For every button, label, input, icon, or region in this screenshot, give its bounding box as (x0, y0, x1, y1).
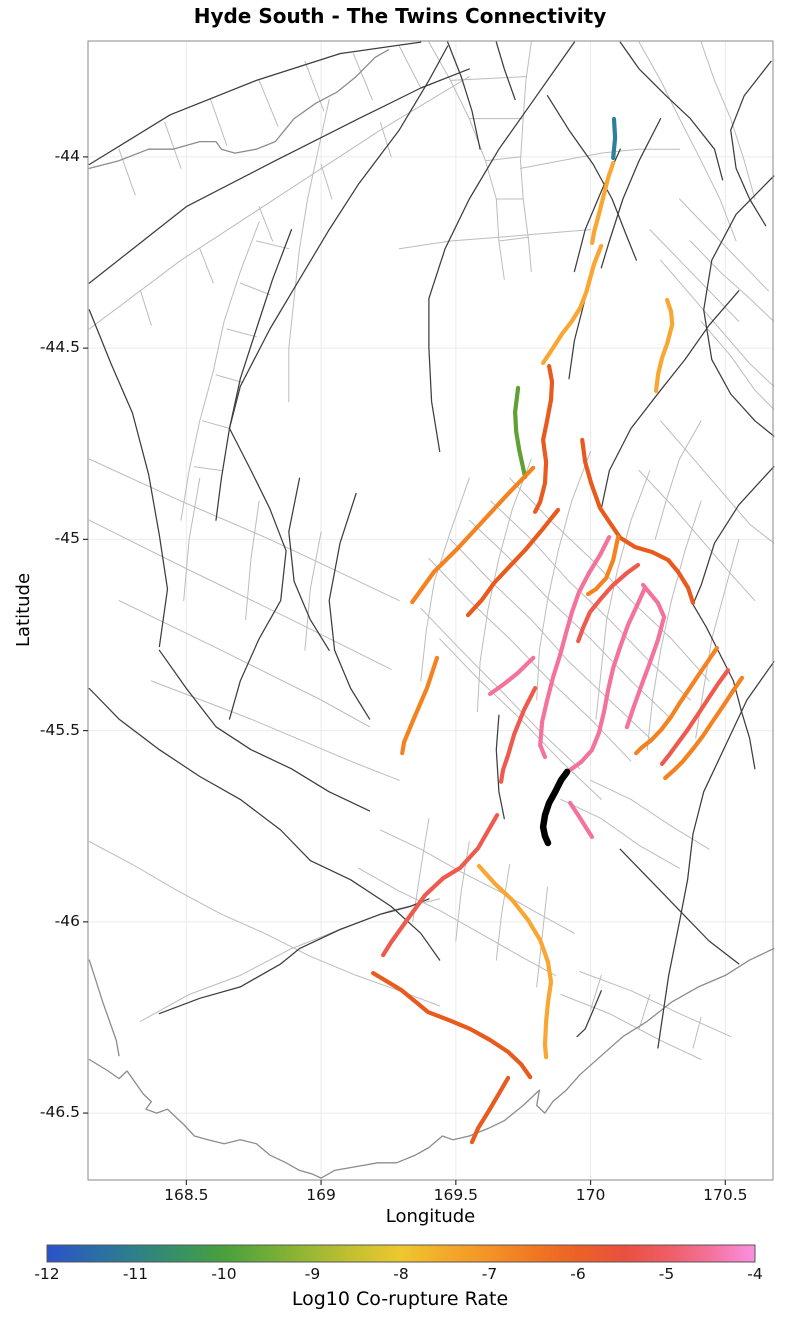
fault-line (89, 459, 399, 601)
colorbar (47, 1245, 755, 1262)
target-fault (543, 772, 567, 843)
fault-line (165, 123, 181, 169)
fault-line (203, 421, 230, 429)
fault-line (561, 995, 701, 1060)
fault-line (701, 321, 774, 409)
x-tick-label: 169.5 (421, 1186, 491, 1204)
fault-line (580, 972, 731, 1037)
colorbar-tick-label: -6 (553, 1265, 603, 1283)
fault-line (704, 176, 774, 436)
target-fault-trace (543, 772, 567, 843)
rupture-trace (383, 815, 497, 955)
fault-line (216, 375, 243, 383)
fault-line (496, 865, 509, 961)
coastline-path (89, 960, 119, 1056)
colorbar-label: Log10 Co-rupture Rate (0, 1288, 800, 1310)
fault-line (620, 42, 722, 180)
fault-line (159, 899, 429, 1014)
plot-title: Hyde South - The Twins Connectivity (0, 4, 800, 28)
y-tick-label: -45.5 (20, 721, 80, 739)
rupture-trace (501, 688, 535, 782)
fault-line (89, 520, 391, 669)
fault-line (119, 149, 135, 195)
colorbar-tick-label: -7 (465, 1265, 515, 1283)
rupture-trace (613, 119, 615, 158)
rupture-trace (627, 585, 664, 727)
y-tick-label: -44 (20, 147, 80, 165)
fault-line (321, 165, 332, 200)
x-tick-label: 170 (556, 1186, 626, 1204)
fault-line (256, 241, 288, 249)
fault-line (496, 42, 515, 99)
rupture-trace (472, 1078, 508, 1142)
colorbar-tick-label: -9 (288, 1265, 338, 1283)
colorbar-tick-label: -4 (730, 1265, 780, 1283)
rupture-trace (582, 440, 693, 603)
fault-line (181, 222, 259, 520)
fault-line (561, 799, 680, 868)
fault-line (620, 849, 739, 964)
fault-line (200, 249, 214, 283)
fault-line (89, 69, 469, 283)
x-tick-label: 170.5 (690, 1186, 760, 1204)
y-tick-label: -46 (20, 912, 80, 930)
fault-line (399, 46, 421, 88)
fault-line (693, 604, 755, 768)
fault-line (246, 501, 260, 620)
fault-line (289, 100, 329, 402)
fault-line (89, 42, 421, 164)
fault-line (450, 539, 650, 738)
fault-line (680, 199, 769, 291)
fault-line (259, 80, 278, 126)
fault-line (731, 61, 771, 225)
fault-line (141, 291, 152, 325)
figure: Hyde South - The Twins Connectivity Long… (0, 0, 800, 1327)
fault-line (89, 310, 167, 647)
rupture-trace (592, 163, 613, 243)
colorbar-tick-label: -8 (376, 1265, 426, 1283)
fault-line (693, 467, 774, 605)
rupture-trace (479, 866, 551, 1057)
rupture-trace (570, 803, 592, 837)
colorbar-tick-label: -10 (199, 1265, 249, 1283)
co-rupture-traces (373, 119, 742, 1142)
background-fault-network-light (89, 42, 774, 1059)
colorbar-tick-label: -12 (22, 1265, 72, 1283)
coastline-path (89, 50, 388, 169)
fault-line (701, 42, 755, 199)
fault-line (89, 77, 469, 329)
fault-line (259, 207, 273, 241)
y-tick-label: -44.5 (20, 338, 80, 356)
fault-line (661, 421, 774, 543)
fault-line (119, 601, 370, 727)
colorbar-gradient (47, 1245, 755, 1262)
colorbar-tick-label: -11 (111, 1265, 161, 1283)
fault-line (227, 329, 257, 337)
fault-line (329, 494, 369, 720)
y-tick-label: -46.5 (20, 1103, 80, 1121)
rupture-trace (490, 658, 533, 694)
rupture-trace (402, 658, 437, 753)
x-tick-label: 168.5 (151, 1186, 221, 1204)
rupture-trace (665, 678, 742, 778)
colorbar-tick-label: -5 (642, 1265, 692, 1283)
fault-line (486, 157, 521, 161)
coastline (89, 50, 774, 1178)
fault-line (577, 991, 601, 1037)
fault-line (89, 689, 310, 861)
rupture-trace (515, 388, 525, 477)
fault-map-canvas (0, 0, 800, 1327)
fault-line (194, 467, 221, 471)
y-tick-label: -45 (20, 529, 80, 547)
x-axis-label: Longitude (88, 1206, 773, 1227)
fault-line (521, 149, 680, 168)
rupture-trace (543, 246, 601, 363)
fault-line (230, 428, 287, 719)
fault-line (380, 123, 391, 157)
fault-line (310, 861, 439, 961)
rupture-trace (412, 468, 533, 602)
background-fault-network-dark (89, 42, 774, 1048)
fault-line (591, 780, 710, 849)
rupture-trace (535, 366, 552, 512)
fault-line (499, 237, 529, 241)
x-tick-label: 169 (286, 1186, 356, 1204)
fault-line (230, 46, 448, 428)
fault-line (211, 100, 227, 146)
fault-line (240, 283, 270, 295)
fault-line (141, 899, 440, 1021)
rupture-trace (656, 300, 672, 391)
fault-line (639, 42, 736, 241)
rupture-trace (373, 973, 530, 1077)
coastline-path (89, 949, 774, 1179)
fault-line (399, 230, 590, 249)
